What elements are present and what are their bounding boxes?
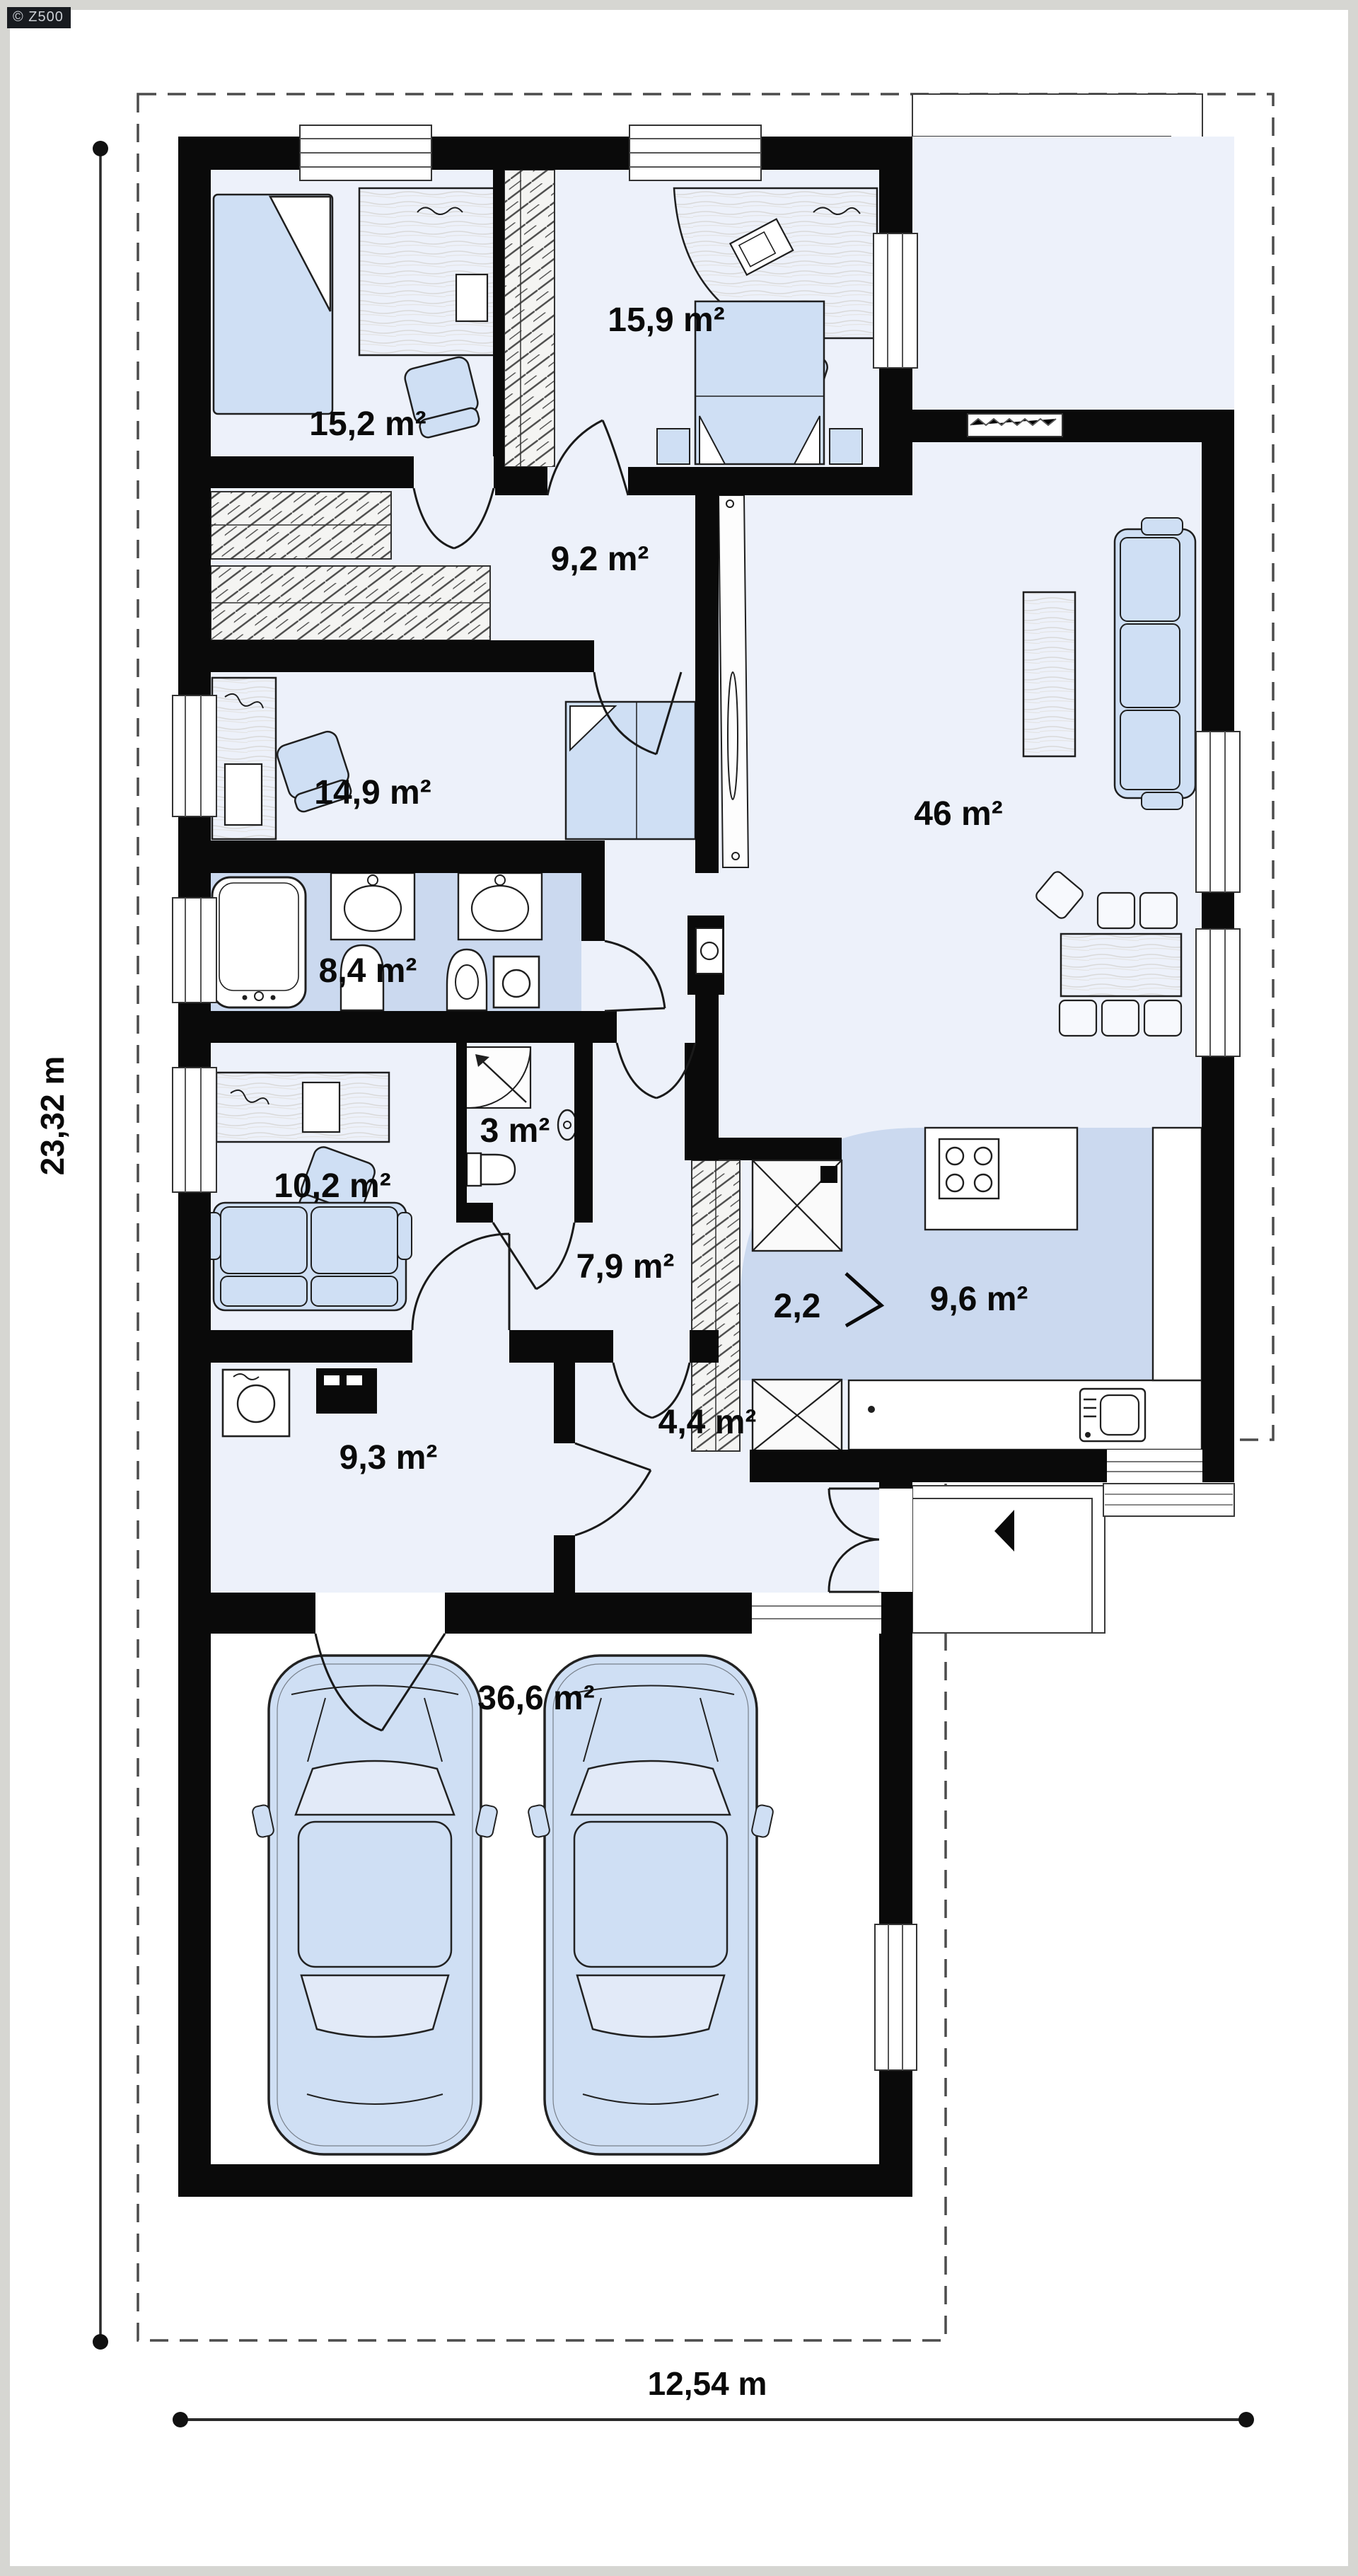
toilet-icon — [467, 1153, 515, 1186]
room-label-office: 10,2 m² — [274, 1167, 390, 1205]
sofa-3seat-icon — [1115, 518, 1195, 809]
floor-plan-svg: 15,2 m² 15,9 m² 9,2 m² 14,9 m² 46 m² 8,4… — [0, 0, 1358, 2576]
room-label-entry: 4,4 m² — [658, 1404, 757, 1441]
room-label-bedroom-middle: 14,9 m² — [314, 774, 431, 812]
tv-bench-icon — [1023, 592, 1075, 756]
room-label-bedroom-top: 15,9 m² — [608, 301, 724, 339]
kitchen-porch-steps — [1103, 1484, 1234, 1516]
desk-icon — [359, 188, 495, 355]
sink-icon — [458, 873, 542, 940]
kitchen-counter — [849, 1380, 1202, 1450]
z500-watermark: © Z500 — [7, 7, 71, 28]
nightstand-icon — [830, 429, 862, 464]
kitchen-counter-right — [1153, 1128, 1202, 1380]
dining-table-icon — [1061, 934, 1181, 996]
kitchen-sink-icon — [1080, 1389, 1145, 1441]
shower-icon — [465, 1047, 530, 1108]
room-label-living-room: 46 m² — [914, 795, 1002, 833]
dining-chair-icon — [1060, 1000, 1096, 1036]
dining-chair-icon — [1140, 893, 1177, 928]
boiler-icon — [223, 1370, 289, 1436]
room-label-bathroom: 8,4 m² — [319, 952, 417, 990]
bidet-icon — [447, 949, 487, 1010]
cabinet-icon — [316, 1368, 377, 1414]
room-label-pantry: 2,2 — [774, 1288, 821, 1325]
dining-chair-icon — [1102, 1000, 1139, 1036]
room-label-kitchen: 9,6 m² — [930, 1281, 1028, 1318]
floor-plan-page: { "watermark": { "label": "© Z500" }, "d… — [0, 0, 1358, 2576]
car-icon — [528, 1656, 774, 2154]
room-label-hall: 7,9 m² — [576, 1248, 675, 1286]
dimension-label-height: 23,32 m — [34, 1056, 71, 1176]
stove-icon — [939, 1139, 999, 1199]
room-label-bedroom-left: 15,2 m² — [309, 405, 426, 443]
sliding-door-leaf — [719, 495, 748, 867]
dining-chair-icon — [1144, 1000, 1181, 1036]
washing-machine-icon — [494, 957, 539, 1007]
sofa-2seat-icon — [207, 1203, 412, 1310]
shelf-unit-icon — [753, 1380, 842, 1451]
monitor-icon — [225, 764, 262, 825]
room-label-garage: 36,6 m² — [477, 1680, 594, 1717]
room-label-utility: 9,3 m² — [339, 1439, 438, 1477]
car-icon — [252, 1656, 499, 2154]
keyboard-icon — [456, 275, 487, 321]
dining-chair-icon — [1098, 893, 1134, 928]
monitor-icon — [303, 1082, 339, 1132]
shelf-unit-icon — [753, 1160, 842, 1251]
sink-icon — [331, 873, 414, 940]
room-label-corridor: 9,2 m² — [551, 541, 649, 578]
room-label-wc: 3 m² — [480, 1112, 550, 1150]
dimension-label-width: 12,54 m — [648, 2365, 767, 2402]
entry-porch-outline — [912, 1486, 1105, 1633]
fireplace-icon — [687, 916, 724, 995]
nightstand-icon — [657, 429, 690, 464]
